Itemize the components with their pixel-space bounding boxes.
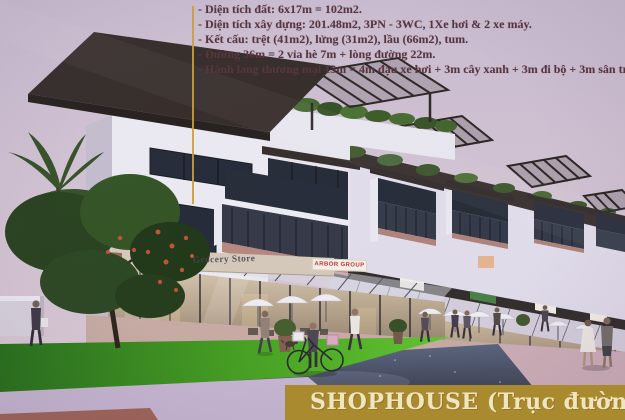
arbor-group-sign: ARBOR GROUP (312, 258, 367, 272)
info-line-commercial: - Hành lang thương mại 13m = 4m đậu xe h… (198, 62, 625, 77)
accent-line (192, 6, 194, 204)
info-panel: - Diện tích đất: 6x17m = 102m2. - Diện t… (198, 2, 625, 82)
info-line-land-area: - Diện tích đất: 6x17m = 102m2. (198, 2, 625, 17)
banner-title: SHOPHOUSE (Trục đường 36 (285, 385, 625, 420)
info-line-built-area: - Diện tích xây dựng: 201.48m2, 3PN - 3W… (198, 17, 625, 32)
marketing-photo: - Diện tích đất: 6x17m = 102m2. - Diện t… (0, 0, 625, 420)
info-line-road: - Đường 36m = 2 vỉa hè 7m + lòng đường 2… (198, 47, 625, 62)
info-line-structure: - Kết cấu: trệt (41m2), lửng (31m2), lầu… (198, 32, 625, 47)
shophouse-banner: SHOPHOUSE (Trục đường 36 (285, 385, 625, 420)
